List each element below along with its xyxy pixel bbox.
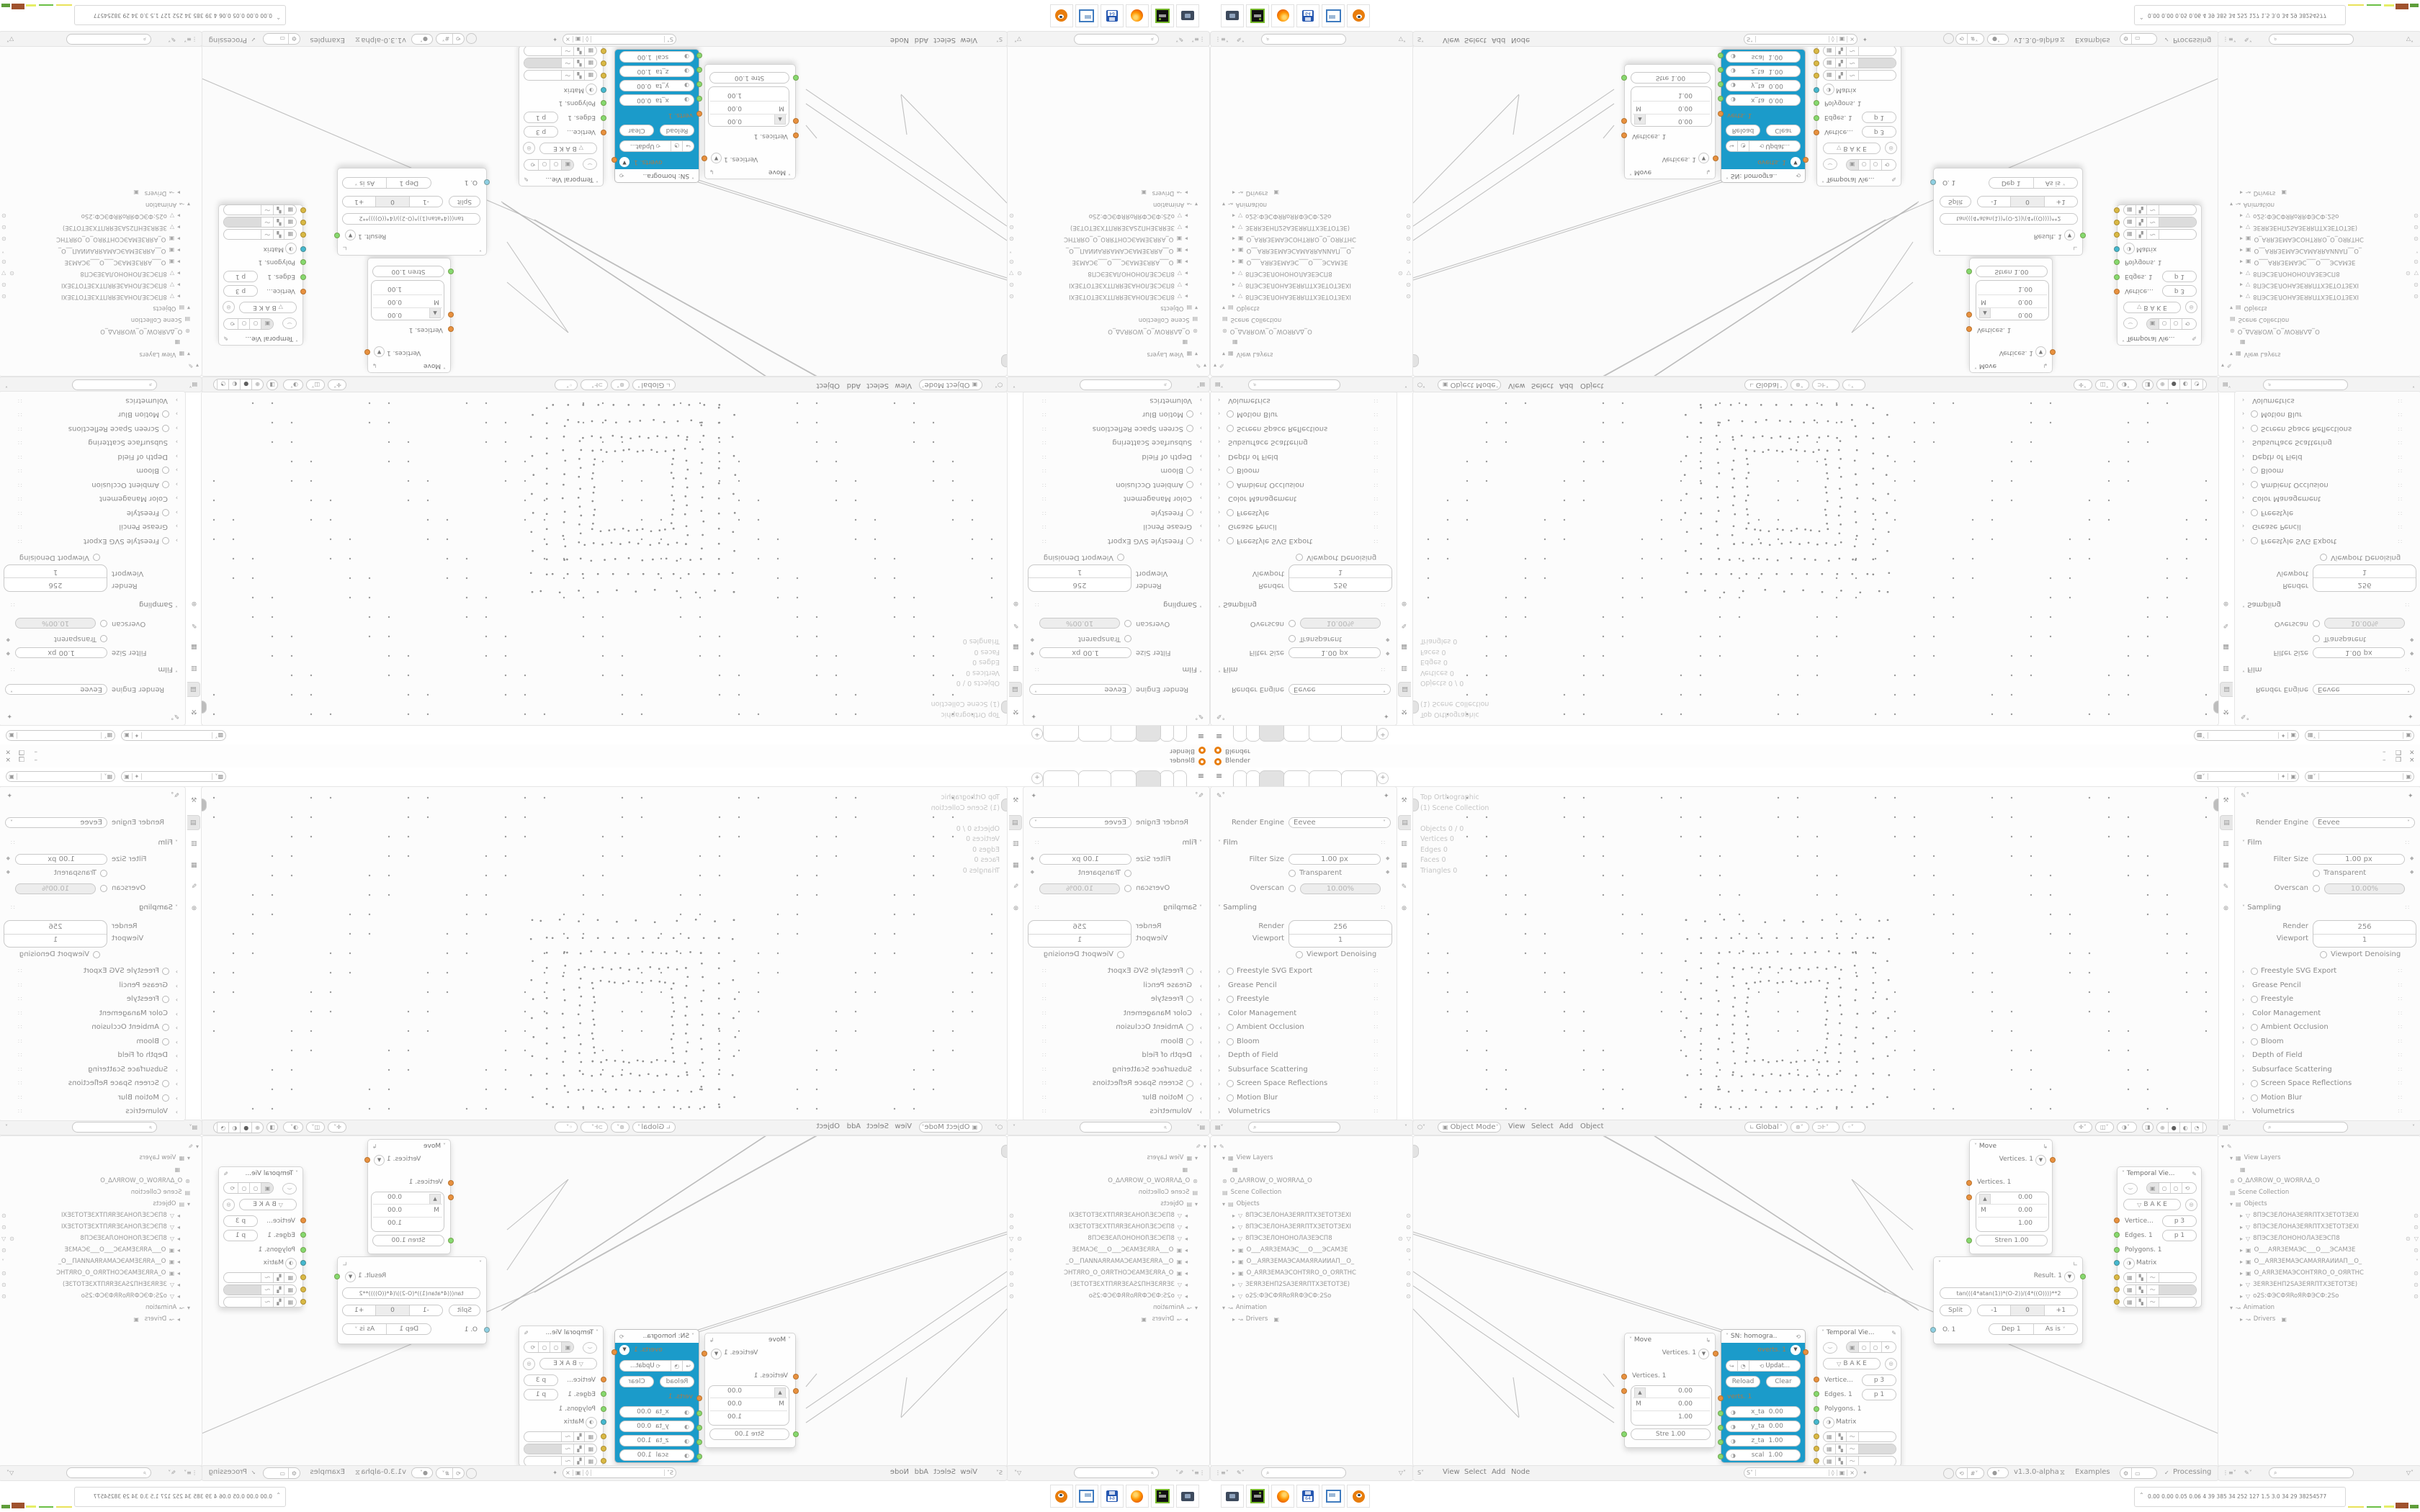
menu-object[interactable]: Object — [1580, 1122, 1604, 1130]
strength-field[interactable]: Stren 1.00 — [1976, 1235, 2048, 1246]
eye-icon[interactable]: ⊙ — [1009, 1212, 1014, 1219]
section-color-management[interactable]: ›Color Management:: — [0, 1008, 185, 1021]
copy-icon[interactable]: ▣ — [2287, 732, 2298, 739]
viewport-denoising-checkbox[interactable] — [93, 554, 100, 561]
filter-size-field[interactable]: 1.00 px — [1039, 647, 1131, 658]
transparent-checkbox[interactable] — [2313, 635, 2320, 642]
outliner-row-object[interactable]: ▸▽ЗЕЯRЗЕНП2SАЗЕЯRПТХЗЕТОТЗЕ)⊙▭▣ — [1232, 1279, 1412, 1290]
expand-icon[interactable]: ▸ — [177, 1270, 180, 1277]
outliner-row-root[interactable]: ▾✎ — [2221, 360, 2419, 372]
drag-dots[interactable]: :: — [17, 469, 22, 475]
mode-dropdown[interactable]: As is ˅ — [343, 1324, 387, 1334]
eye-icon[interactable]: ⊙ — [1009, 213, 1014, 220]
expand-icon[interactable]: › — [2242, 453, 2244, 459]
expand-icon[interactable]: ▾ — [1222, 351, 1225, 358]
drag-dots[interactable]: :: — [2398, 539, 2403, 545]
gizmos-dropdown[interactable]: ✛˅ — [328, 1122, 346, 1133]
drag-dots[interactable]: :: — [1373, 469, 1379, 475]
section-motion-blur[interactable]: ›Motion Blur:: — [1023, 1092, 1209, 1105]
section-subsurface-scattering[interactable]: ›Subsurface Scattering:: — [1211, 1064, 1397, 1077]
section-motion-blur[interactable]: ›Motion Blur:: — [2235, 1092, 2420, 1105]
edit-icon[interactable]: ✎ — [524, 1330, 529, 1336]
expand-icon[interactable]: ▸ — [1185, 1270, 1188, 1277]
edges-pill[interactable]: p 1 — [1862, 1389, 1896, 1400]
menu-select[interactable]: Select — [866, 1122, 889, 1130]
mode-dropdown[interactable]: ▣Object Mode˅ — [919, 1122, 982, 1133]
socket-matrix[interactable] — [300, 1260, 306, 1266]
field-scale[interactable]: ◑scal 1.00 — [1726, 1449, 1801, 1461]
expand-icon[interactable]: ▾ — [196, 363, 199, 369]
outliner-row-world[interactable]: ⊛O_ΔΛЯROW_O_WOЯRΛΔ_O — [1222, 325, 1412, 337]
expand-icon[interactable]: › — [2242, 523, 2244, 530]
object-socket-row[interactable]: ▦▚〜 — [1823, 1444, 1896, 1454]
value-x[interactable]: 0.00 — [1678, 1387, 1693, 1395]
node-move-b[interactable]: ˅ Move↳ Vertices. 1 ▼ Vertices. 1 ▲ 0.00… — [367, 258, 451, 373]
plus-button[interactable]: +1 — [343, 197, 375, 207]
shield-icon[interactable]: ◊ — [583, 1470, 591, 1476]
properties-search[interactable]: ⌕ — [1248, 1122, 1340, 1133]
overscan-checkbox[interactable] — [1124, 885, 1131, 892]
object-socket-row[interactable]: ▦▚〜 — [1823, 70, 1896, 81]
expand-icon[interactable]: › — [2242, 439, 2244, 446]
expand-icon[interactable]: ▸ — [1232, 236, 1235, 243]
object-socket-row[interactable]: ▦▚〜 — [223, 204, 297, 215]
expand-icon[interactable]: ▾ — [196, 1143, 199, 1150]
drag-dots[interactable]: :: — [1373, 1023, 1379, 1030]
overscan-checkbox[interactable] — [1289, 885, 1296, 892]
expand-icon[interactable]: › — [176, 1053, 178, 1059]
eye-icon[interactable]: ⊙ — [1406, 282, 1411, 289]
outliner-row-object[interactable]: ▸▽8ПЭСЗЕЛОНОНОЛАЗЕЭСП8⊙▽▭▣ — [1232, 268, 1412, 279]
drag-dots[interactable]: :: — [2398, 981, 2403, 988]
socket-object[interactable] — [601, 1458, 606, 1464]
drag-dots[interactable]: :: — [2398, 1094, 2403, 1100]
drag-dots[interactable]: :: — [1041, 1066, 1047, 1072]
outliner-row-scene-collection[interactable]: ▤Scene Collection — [2230, 314, 2419, 325]
reload-button[interactable]: Reload — [660, 1376, 694, 1387]
socket-strength[interactable] — [448, 1238, 454, 1243]
anim-dot[interactable]: ◆ — [1031, 855, 1034, 861]
minimize-button[interactable]: – — [2383, 757, 2386, 764]
expand-icon[interactable]: ▾ — [1214, 363, 1216, 369]
output-icon[interactable]: ▥ — [188, 837, 200, 850]
depth-mode-group[interactable]: Dep 1 As is ˅ — [1989, 1323, 2078, 1335]
result-dropdown[interactable]: ▼ — [345, 1272, 356, 1282]
outliner-row-root[interactable]: ▾✎ — [1214, 1140, 1412, 1152]
transform-orientation-dropdown[interactable]: ∟Global˅ — [1744, 379, 1788, 390]
transform-orientation-dropdown[interactable]: ∟Global˅ — [1744, 1122, 1788, 1133]
socket-vertices[interactable] — [1814, 130, 1819, 135]
expand-icon[interactable]: › — [2242, 495, 2244, 502]
section-freestyle-svg-export[interactable]: ›Freestyle SVG Export:: — [1211, 966, 1397, 978]
expand-icon[interactable]: › — [1200, 523, 1202, 530]
bake-button[interactable]: ▽B A K E — [1823, 1358, 1881, 1369]
socket-strength[interactable] — [793, 75, 799, 81]
outliner-row-object[interactable]: ▸▽8ПЭСЗЕЛОНАЗЕЯRПТХЗЕТОТЗЕХI⊙▭▣ — [1, 291, 180, 302]
socket-z[interactable] — [696, 1439, 702, 1445]
expand-icon[interactable]: › — [1218, 968, 1220, 975]
section-depth-of-field[interactable]: ›Depth of Field:: — [0, 449, 185, 462]
outliner-row-render-layer[interactable]: ▦▣ — [1008, 337, 1188, 348]
section-bloom[interactable]: ›Bloom:: — [2235, 464, 2420, 477]
unlink-icon[interactable]: × — [1847, 36, 1857, 42]
section-grease-pencil[interactable]: ›Grease Pencil:: — [1023, 520, 1209, 533]
expand-icon[interactable]: › — [176, 1011, 178, 1017]
drag-dots[interactable]: :: — [17, 454, 22, 461]
workspace-tab-6[interactable] — [1341, 770, 1377, 786]
socket-vertices-out[interactable] — [364, 1157, 370, 1163]
eye-icon[interactable]: ⊙ — [1009, 225, 1014, 231]
expand-icon[interactable]: › — [1200, 425, 1202, 431]
field-scale[interactable]: ◑scal 1.00 — [619, 1449, 694, 1461]
shield-icon[interactable]: ◊ — [1829, 36, 1837, 42]
edges-pill[interactable]: p 1 — [223, 271, 258, 282]
socket-overts-out[interactable] — [1803, 1349, 1809, 1355]
scene-selector[interactable]: ▩˅ ✦ ▣ — [121, 730, 226, 741]
toolbar-toggle[interactable] — [1001, 701, 1007, 714]
drag-dots[interactable]: :: — [1373, 441, 1379, 447]
socket-strength[interactable] — [448, 269, 454, 274]
expand-icon[interactable]: ▸ — [1185, 1282, 1188, 1288]
shading-wireframe-icon[interactable]: ⊕ — [2157, 1122, 2169, 1133]
tool-icon[interactable]: ⚒ — [1398, 793, 1410, 807]
shading-solid-icon[interactable]: ● — [240, 379, 251, 390]
snap-target-dropdown[interactable]: ⊛˅ — [611, 379, 629, 390]
plus-button[interactable]: +1 — [343, 1305, 375, 1315]
eye-icon[interactable]: ⊙ — [2414, 1270, 2419, 1277]
expand-icon[interactable]: ▾ — [2230, 202, 2233, 208]
outliner-row-animation[interactable]: ▾↝Animation — [2230, 199, 2419, 210]
refresh-icon[interactable]: ⟲ — [1796, 1333, 1801, 1340]
socket-object[interactable] — [1814, 1434, 1819, 1439]
expand-icon[interactable]: ▾ — [187, 305, 190, 312]
eye-closed-icon[interactable]: ˅ — [1408, 248, 1411, 254]
expand-icon[interactable]: › — [2242, 1039, 2244, 1045]
drag-dots[interactable]: :: — [2398, 1009, 2403, 1016]
rewire-icon[interactable]: ◎ — [2185, 301, 2197, 313]
workspace-tab-5[interactable] — [1309, 770, 1342, 786]
anim-dot[interactable]: ◆ — [1031, 637, 1034, 643]
outliner-search[interactable]: ⌕ — [1261, 34, 1346, 45]
strength-field[interactable]: Stre 1.00 — [1631, 1428, 1711, 1440]
outliner-row-scene-collection[interactable]: ▤Scene Collection — [2230, 1187, 2419, 1198]
socket-object[interactable] — [2114, 207, 2120, 213]
section-depth-of-field[interactable]: ›Depth of Field:: — [2235, 449, 2420, 462]
section-subsurface-scattering[interactable]: ›Subsurface Scattering:: — [0, 436, 185, 449]
viewport-samples-field[interactable]: 1 — [1028, 934, 1131, 947]
color-preview[interactable]: ‿ — [282, 1183, 297, 1194]
render-engine-dropdown[interactable]: Eevee ˅ — [1029, 817, 1131, 828]
socket-object[interactable] — [1814, 1446, 1819, 1452]
editor-type-icon[interactable]: ▤˅ — [1215, 1124, 1224, 1130]
socket-x[interactable] — [1718, 96, 1724, 102]
editor-type-icon[interactable]: ⬡˅ — [1417, 382, 1425, 388]
render-icon[interactable]: ▤ — [2220, 682, 2233, 697]
expand-icon[interactable]: › — [1218, 1095, 1220, 1102]
section-freestyle[interactable]: ›Freestyle:: — [1211, 505, 1397, 518]
menu-select[interactable]: Select — [1531, 382, 1554, 390]
object-socket-row[interactable]: ▦▚〜 — [1823, 58, 1896, 68]
outliner-row-object[interactable]: ▸▣O__AЯRЗЕМАЭСАМАЯRАИИАП__O_˅▭▣ — [1, 1256, 180, 1267]
color-preview[interactable]: ‿ — [2123, 318, 2138, 329]
drag-dots[interactable]: :: — [1041, 1009, 1047, 1016]
socket-object[interactable] — [300, 232, 306, 238]
drag-dots[interactable]: :: — [1041, 1051, 1047, 1058]
socket-x[interactable] — [1718, 1410, 1724, 1416]
outliner-row-object[interactable]: ▸▽ЗЕЯRЗЕНП2SАЗЕЯRПТХЗЕТОТЗЕ)⊙▭▣ — [1, 222, 180, 233]
eye-icon[interactable]: ⊙ — [9, 271, 14, 277]
expand-icon[interactable]: › — [1218, 523, 1220, 530]
pin-icon[interactable]: ✦ — [133, 773, 143, 780]
current-value[interactable]: 0 — [2011, 1305, 2044, 1315]
editor-type-icon[interactable]: ▤˅ — [1196, 382, 1205, 388]
section-bloom[interactable]: ›Bloom:: — [1211, 1036, 1397, 1049]
socket-object[interactable] — [601, 48, 606, 54]
display-mode-icon[interactable]: ⋮≡˅ — [1191, 36, 1205, 42]
expand-icon[interactable]: ▾ — [1204, 1143, 1206, 1150]
gizmos-dropdown[interactable]: ✛˅ — [328, 379, 346, 390]
section-freestyle-svg-export[interactable]: ›Freestyle SVG Export:: — [1023, 534, 1209, 546]
color-preview[interactable]: ‿ — [583, 1342, 597, 1354]
shading-rendered-icon[interactable]: ◔ — [217, 379, 228, 390]
pin-icon[interactable]: ✦ — [552, 1470, 557, 1476]
film-section-header[interactable]: ˅ Film — [2242, 665, 2262, 673]
drag-dots[interactable]: :: — [17, 1009, 22, 1016]
outliner-row-object[interactable]: ▸▣O__AЯRЗЕМАЭСАМАЯRАИИАП__O_˅▭▣ — [1, 245, 180, 256]
expand-icon[interactable]: ▸ — [2240, 248, 2243, 254]
drag-dots[interactable]: :: — [1373, 525, 1379, 531]
outliner-row-world[interactable]: ⊛O_ΔΛЯROW_O_WOЯRΛΔ_O — [1222, 1175, 1412, 1187]
viewlayer-icon[interactable]: ▦ — [188, 640, 200, 654]
film-section-header[interactable]: ˅ Film — [1218, 839, 1238, 847]
shading-dropdown-icon[interactable]: ˅ — [2203, 379, 2207, 390]
display-toggle-group[interactable]: ▣○○⟲ — [524, 159, 574, 171]
options-dropdown-icon[interactable]: ˅ — [1404, 1124, 1407, 1130]
menu-select[interactable]: Select — [933, 36, 956, 44]
filter-icon[interactable]: ▽˅ — [6, 1470, 14, 1476]
drag-dots[interactable]: :: — [17, 1094, 22, 1100]
taskbar-icon-blender[interactable] — [1347, 1485, 1370, 1508]
split-button[interactable]: Split — [1940, 196, 1971, 207]
section-checkbox[interactable] — [1227, 425, 1234, 432]
eye-icon[interactable]: ⊙ — [2414, 1224, 2419, 1230]
expand-icon[interactable]: › — [1200, 1095, 1202, 1102]
socket-strength[interactable] — [1966, 269, 1972, 274]
expand-icon[interactable]: › — [1200, 1011, 1202, 1017]
section-ambient-occlusion[interactable]: ›Ambient Occlusion:: — [1023, 1022, 1209, 1035]
bake-button[interactable]: ▽B A K E — [2123, 302, 2181, 313]
value-x[interactable]: 0.00 — [387, 1194, 402, 1201]
object-socket-row[interactable]: ▦▚〜 — [2123, 1284, 2197, 1295]
section-freestyle[interactable]: ›Freestyle:: — [2235, 505, 2420, 518]
formula-field[interactable]: tan(((4*atan(1))*(O-2))/(4*((O))))**2 — [342, 1287, 480, 1299]
expand-icon[interactable]: ▸ — [2240, 1212, 2243, 1219]
mode-dropdown[interactable]: As is ˅ — [343, 178, 387, 188]
socket-matrix[interactable] — [1814, 87, 1819, 93]
edges-pill[interactable]: p 1 — [1862, 112, 1896, 123]
drag-dots[interactable]: :: — [10, 667, 15, 673]
eye-icon[interactable]: ⊙ — [1009, 294, 1014, 300]
socket-vertices[interactable] — [300, 289, 306, 294]
value-y[interactable]: 0.00 — [387, 298, 402, 305]
edit-icon[interactable]: ✎ — [2192, 1171, 2197, 1177]
anim-dot[interactable]: ◆ — [6, 651, 10, 657]
outliner-row-object[interactable]: ▸▽8ПЭСЗЕЛОНОНОЛАЗЕЭСП8⊙▽▭▣ — [2240, 1233, 2419, 1244]
node-sn-homography[interactable]: ˅ SN: homogra..⟲ overts. 1 ▼ ↪ ◔ ⟲Updat.… — [614, 1329, 699, 1463]
modifier-icon[interactable]: ▽ — [2414, 271, 2419, 277]
editor-type-icon[interactable]: S˅ — [996, 36, 1003, 42]
eye-icon[interactable]: ⊙ — [1009, 1282, 1014, 1288]
film-section-header[interactable]: ˅ Film — [158, 839, 178, 847]
expand-icon[interactable]: ▾ — [187, 202, 190, 208]
viewport-denoising-checkbox[interactable] — [1117, 554, 1124, 561]
socket-object[interactable] — [1814, 60, 1819, 66]
outliner-row-object[interactable]: ▸▣O__AЯRЗЕМАЭСАМАЯRАИИАП__O_˅▭▣ — [1008, 245, 1188, 256]
outliner-row-object[interactable]: ▸▽8ПЭСЗЕЛОНАЗЕЯRПТХЗЕТОТЗЕХI⊙▭▣ — [1008, 279, 1188, 291]
section-checkbox[interactable] — [1227, 481, 1234, 488]
outliner-row-object[interactable]: ▸▽8ПЭСЗЕЛОНАЗЕЯRПТХЗЕТОТЗЕХI⊙▭▣ — [1232, 1210, 1412, 1221]
socket-object[interactable] — [2114, 220, 2120, 225]
drag-dots[interactable]: :: — [1381, 839, 1386, 845]
workspace-tab-2[interactable] — [1160, 770, 1174, 786]
outliner-row-object[interactable]: ▸▽o2S:ФЭСФЯRoЯRФЭСФ:2So⊙▭▣ — [1, 1290, 180, 1302]
expand-icon[interactable]: › — [2242, 537, 2244, 544]
drag-dots[interactable]: :: — [2405, 602, 2410, 608]
eye-icon[interactable]: ⊙ — [1398, 271, 1403, 277]
eye-icon[interactable]: ⊙ — [1406, 213, 1411, 220]
examples-menu[interactable]: Examples — [2075, 36, 2110, 44]
value-z[interactable]: 1.00 — [2018, 1220, 2033, 1227]
output-icon[interactable]: ▥ — [1010, 837, 1022, 850]
workspace-tab-1[interactable] — [1173, 726, 1187, 742]
outliner-row-scene-collection[interactable]: ▤Scene Collection — [1222, 314, 1412, 325]
drag-dots[interactable]: :: — [1034, 904, 1039, 910]
value-y[interactable]: 0.00 — [387, 1207, 402, 1214]
object-socket-row[interactable]: ▦▚〜 — [2123, 1272, 2197, 1283]
anim-dot[interactable]: ◆ — [2410, 637, 2414, 643]
socket-vertices-in[interactable] — [448, 326, 454, 332]
expand-icon[interactable]: › — [1218, 481, 1220, 487]
expand-icon[interactable]: › — [1200, 1109, 1202, 1115]
taskbar-icon-floppy-64[interactable]: 64 — [1101, 4, 1124, 27]
expand-icon[interactable]: ▸ — [1232, 1270, 1235, 1277]
output-icon[interactable]: ▥ — [1398, 662, 1410, 675]
modifier-icon[interactable]: ▽ — [1407, 1236, 1411, 1242]
tool-icon[interactable]: ⚒ — [1010, 793, 1022, 807]
expand-icon[interactable]: ▾ — [1195, 1155, 1198, 1161]
field-scale[interactable]: ◑scal 1.00 — [619, 51, 694, 63]
section-bloom[interactable]: ›Bloom:: — [1023, 1036, 1209, 1049]
expand-icon[interactable]: ▾ — [1195, 1305, 1198, 1311]
examples-menu[interactable]: Examples — [310, 1468, 345, 1476]
socket-y[interactable] — [1718, 81, 1724, 87]
update-mode-group[interactable]: ⟲#˅ — [436, 33, 465, 45]
anim-dot[interactable]: ◆ — [1031, 869, 1034, 875]
object-socket-row[interactable]: ▦▚〜 — [2123, 1297, 2197, 1308]
render-preview-toggle[interactable]: ◨ — [2142, 379, 2154, 390]
eye-icon[interactable]: ⊙ — [1009, 236, 1014, 243]
render-samples-field[interactable]: 256 — [2313, 577, 2416, 591]
options-dropdown-icon[interactable]: ˅ — [5, 382, 8, 388]
expand-icon[interactable]: ▸ — [1185, 1259, 1188, 1265]
section-motion-blur[interactable]: ›Motion Blur:: — [0, 408, 185, 420]
processing-toggle[interactable]: Processing — [209, 36, 247, 44]
outliner-row-object[interactable]: ▸▽8ПЭСЗЕЛОНОНОЛАЗЕЭСП8⊙▽▭▣ — [1008, 268, 1188, 279]
outliner-row-drivers[interactable]: ▸↝Drivers▣ — [1232, 1313, 1412, 1325]
section-color-management[interactable]: ›Color Management:: — [2235, 1008, 2420, 1021]
expand-icon[interactable]: ▾ — [1195, 202, 1198, 208]
viewport-samples-field[interactable]: 1 — [2313, 934, 2416, 947]
filter-owner-icon[interactable]: ✎˅ — [2244, 1470, 2252, 1476]
anim-dot[interactable]: ◆ — [1386, 637, 1389, 643]
window-titlebar[interactable]: Blender – ❒ × — [1210, 756, 2420, 768]
formula-field[interactable]: tan(((4*atan(1))*(O-2))/(4*((O))))**2 — [1940, 1287, 2078, 1299]
overscan-field[interactable]: 10.00% — [2324, 618, 2405, 629]
render-icon[interactable]: ▤ — [187, 682, 200, 697]
outliner-row-root[interactable]: ▾✎ — [1, 1140, 199, 1152]
drag-dots[interactable]: :: — [2405, 667, 2410, 673]
eye-closed-icon[interactable]: ˅ — [1, 248, 4, 254]
expand-icon[interactable]: ▾ — [1222, 202, 1225, 208]
outliner-row-world[interactable]: ⊛O_ΔΛЯROW_O_WOЯRΛΔ_O — [2230, 1175, 2419, 1187]
outliner-row-object[interactable]: ▸▣O_AЯRЗЕМАЭСОНТЯRО_O_ОЯRТНС⊙▭▣ — [2240, 233, 2419, 245]
workspace-tab-2[interactable] — [1160, 726, 1174, 742]
section-depth-of-field[interactable]: ›Depth of Field:: — [2235, 1050, 2420, 1063]
outliner-row-object[interactable]: ▸▣O___AЯRЗЕМАЭС___O___ЭСАМЗЕ⊙▭▣ — [1232, 256, 1412, 268]
drag-dots[interactable]: :: — [2398, 525, 2403, 531]
render-preview-toggle[interactable]: ◨ — [266, 379, 278, 390]
menu-object[interactable]: Object — [816, 382, 840, 390]
socket-y[interactable] — [1718, 1425, 1724, 1431]
drag-dots[interactable]: :: — [17, 482, 22, 489]
value-y[interactable]: 0.00 — [1678, 104, 1693, 112]
section-screen-space-reflections[interactable]: ›Screen Space Reflections:: — [2235, 1078, 2420, 1091]
menu-node[interactable]: Node — [1511, 36, 1530, 44]
expand-icon[interactable]: › — [2242, 1053, 2244, 1059]
value-y[interactable]: 0.00 — [727, 104, 742, 112]
copy-icon[interactable]: ▣ — [2403, 773, 2414, 780]
drag-dots[interactable]: :: — [17, 967, 22, 973]
section-checkbox[interactable] — [2251, 996, 2258, 1003]
snap-target-dropdown[interactable]: ⊛˅ — [1791, 1122, 1809, 1133]
socket-matrix[interactable] — [601, 87, 606, 93]
axis-up-icon[interactable]: ▲ — [1634, 114, 1646, 125]
3d-viewport[interactable]: Top Orthographic(1) Scene Collection Obj… — [201, 786, 1008, 1121]
node-editor[interactable]: ˅ Move↳ Vertices. 1 ▼ Vertices. 1 ▲ 0.00… — [1412, 1135, 2219, 1467]
workspace-tab-1[interactable] — [1233, 770, 1247, 786]
tool-icon[interactable]: ⚒ — [1010, 705, 1022, 719]
expand-icon[interactable]: ▾ — [2230, 305, 2233, 312]
taskbar-icon-blender[interactable] — [1347, 4, 1370, 27]
clear-button[interactable]: Clear — [1766, 1376, 1801, 1387]
update-button[interactable]: ⟲Updat... — [1749, 1361, 1800, 1371]
socket-result-out[interactable] — [2080, 233, 2086, 238]
socket-vertices-out[interactable] — [2050, 1157, 2056, 1163]
output-icon[interactable]: ▥ — [2220, 662, 2232, 675]
socket-vertices[interactable] — [2114, 289, 2120, 294]
pin-icon[interactable]: ✦ — [133, 732, 143, 739]
workspace-tab-1[interactable] — [1173, 770, 1187, 786]
outliner-row-object[interactable]: ▸▽8ПЭСЗЕЛОНАЗЕЯRПТХЗЕТОТЗЕХI⊙▭▣ — [1232, 291, 1412, 302]
editor-type-icon[interactable]: ⬡˅ — [1417, 1124, 1425, 1130]
outliner-row-object[interactable]: ▸▽ЗЕЯRЗЕНП2SАЗЕЯRПТХЗЕТОТЗЕ)⊙▭▣ — [2240, 222, 2419, 233]
overscan-checkbox[interactable] — [2313, 620, 2320, 627]
expand-icon[interactable]: › — [2242, 481, 2244, 487]
value-y[interactable]: 0.00 — [1678, 1400, 1693, 1408]
node-move-b[interactable]: ˅ Move↳ Vertices. 1 ▼ Vertices. 1 ▲ 0.00… — [367, 1139, 451, 1254]
eye-icon[interactable]: ⊙ — [1406, 225, 1411, 231]
outliner-search[interactable]: ⌕ — [1261, 1467, 1346, 1478]
